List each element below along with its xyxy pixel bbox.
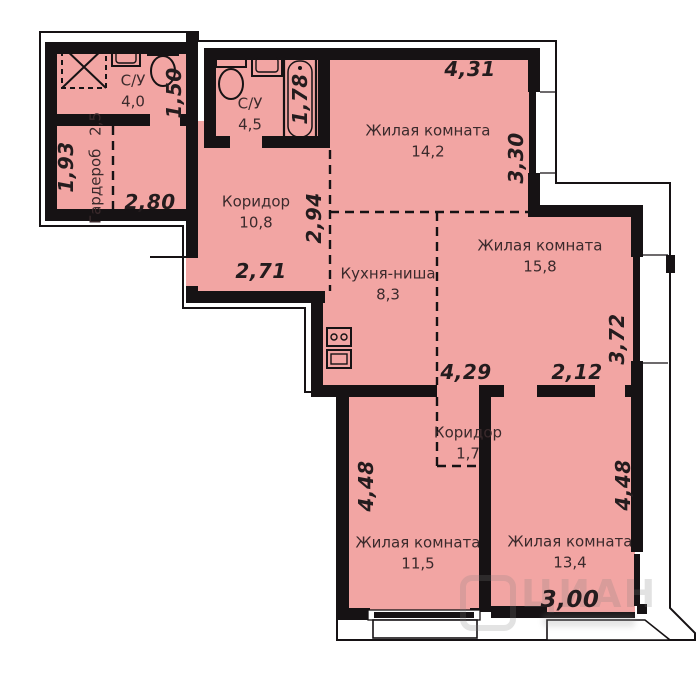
- wall-bath2-bottom-a: [204, 136, 230, 148]
- room-label-kitchen: Кухня-ниша 8,3: [340, 263, 435, 304]
- room-label-bathroom-2: С/У 4,5: [238, 93, 263, 134]
- balcony-living3: [373, 620, 477, 638]
- room-area: 4,0: [121, 91, 146, 112]
- window-living2-sill: [643, 255, 668, 363]
- wall-kitchen-left: [311, 297, 323, 397]
- balcony-living4: [547, 620, 670, 640]
- dimension-2-94: 2,94: [302, 192, 326, 243]
- dimension-1-50: 1,50: [162, 67, 186, 118]
- room-area: 13,4: [508, 552, 633, 573]
- facade-pier: [666, 255, 675, 273]
- room-area: 4,5: [238, 114, 263, 135]
- dimension-2-12: 2,12: [551, 360, 602, 384]
- dimension-1-78: 1,78: [288, 73, 312, 124]
- dimension-2-80: 2,80: [124, 190, 175, 214]
- wall-entry-upper: [186, 126, 198, 256]
- wall-bath2-right: [318, 48, 330, 148]
- room-label-living-2: Жилая комната 15,8: [478, 235, 603, 276]
- dimension-3-00: 3,00: [541, 587, 600, 613]
- wall-living4-top-b: [537, 385, 595, 397]
- floor-plan: ЦИАН С/У 4,0 С/У 4,5 Гардероб 2,5 Коридо…: [0, 0, 700, 700]
- window-living2: [633, 257, 640, 361]
- room-name: Жилая комната: [508, 531, 633, 552]
- wall-living3-left: [337, 385, 349, 620]
- wall-living3-bottom-a: [337, 608, 370, 620]
- wall-step-vertical: [186, 32, 198, 126]
- wall-living4-top-a: [491, 385, 504, 397]
- window-living1-sill: [540, 92, 556, 173]
- dimension-3-30: 3,30: [504, 132, 528, 183]
- room-label-corridor-2: Коридор 1,7: [434, 422, 502, 463]
- wall-room-divider: [479, 385, 491, 612]
- dimension-1-93: 1,93: [54, 141, 78, 192]
- room-name: С/У: [238, 93, 263, 114]
- room-area: 11,5: [356, 553, 481, 574]
- window-living3: [374, 612, 474, 618]
- room-area: 15,8: [478, 256, 603, 277]
- room-name: Жилая комната: [356, 532, 481, 553]
- room-area: 2,5: [86, 108, 107, 140]
- wall-living2-right-upper: [631, 217, 643, 257]
- room-area: 1,7: [434, 443, 502, 464]
- room-area: 14,2: [366, 141, 491, 162]
- wall-left: [45, 42, 57, 221]
- room-name: Жилая комната: [366, 120, 491, 141]
- dimension-3-72: 3,72: [605, 313, 629, 364]
- window-living4-right: [634, 554, 640, 606]
- room-label-bathroom-1: С/У 4,0: [121, 70, 146, 111]
- window-living1: [529, 92, 536, 173]
- room-name: Кухня-ниша: [340, 263, 435, 284]
- room-name: Коридор: [434, 422, 502, 443]
- dimension-4-31: 4,31: [444, 57, 495, 81]
- room-label-living-3: Жилая комната 11,5: [356, 532, 481, 573]
- room-name: Гардероб: [86, 145, 107, 228]
- wall-living3-top: [337, 385, 437, 397]
- room-name: Жилая комната: [478, 235, 603, 256]
- room-label-living-4: Жилая комната 13,4: [508, 531, 633, 572]
- wall-living4-top-c: [625, 385, 643, 397]
- wall-hall-bottom: [186, 291, 325, 303]
- room-label-living-1: Жилая комната 14,2: [366, 120, 491, 161]
- room-name: Коридор: [222, 191, 290, 212]
- wall-living2-top: [528, 205, 643, 217]
- wall-living1-right-upper: [528, 48, 540, 92]
- dimension-4-48-right: 4,48: [611, 459, 635, 510]
- room-label-wardrobe: Гардероб 2,5: [86, 108, 107, 228]
- room-label-hall: Коридор 10,8: [222, 191, 290, 232]
- dimension-4-29: 4,29: [440, 360, 491, 384]
- room-name: С/У: [121, 70, 146, 91]
- room-area: 10,8: [222, 212, 290, 233]
- wall-living4-bottom: [491, 606, 547, 618]
- room-area: 8,3: [340, 284, 435, 305]
- wall-bath2-left: [204, 48, 216, 148]
- dimension-4-48-left: 4,48: [354, 460, 378, 511]
- dimension-2-71: 2,71: [235, 259, 286, 283]
